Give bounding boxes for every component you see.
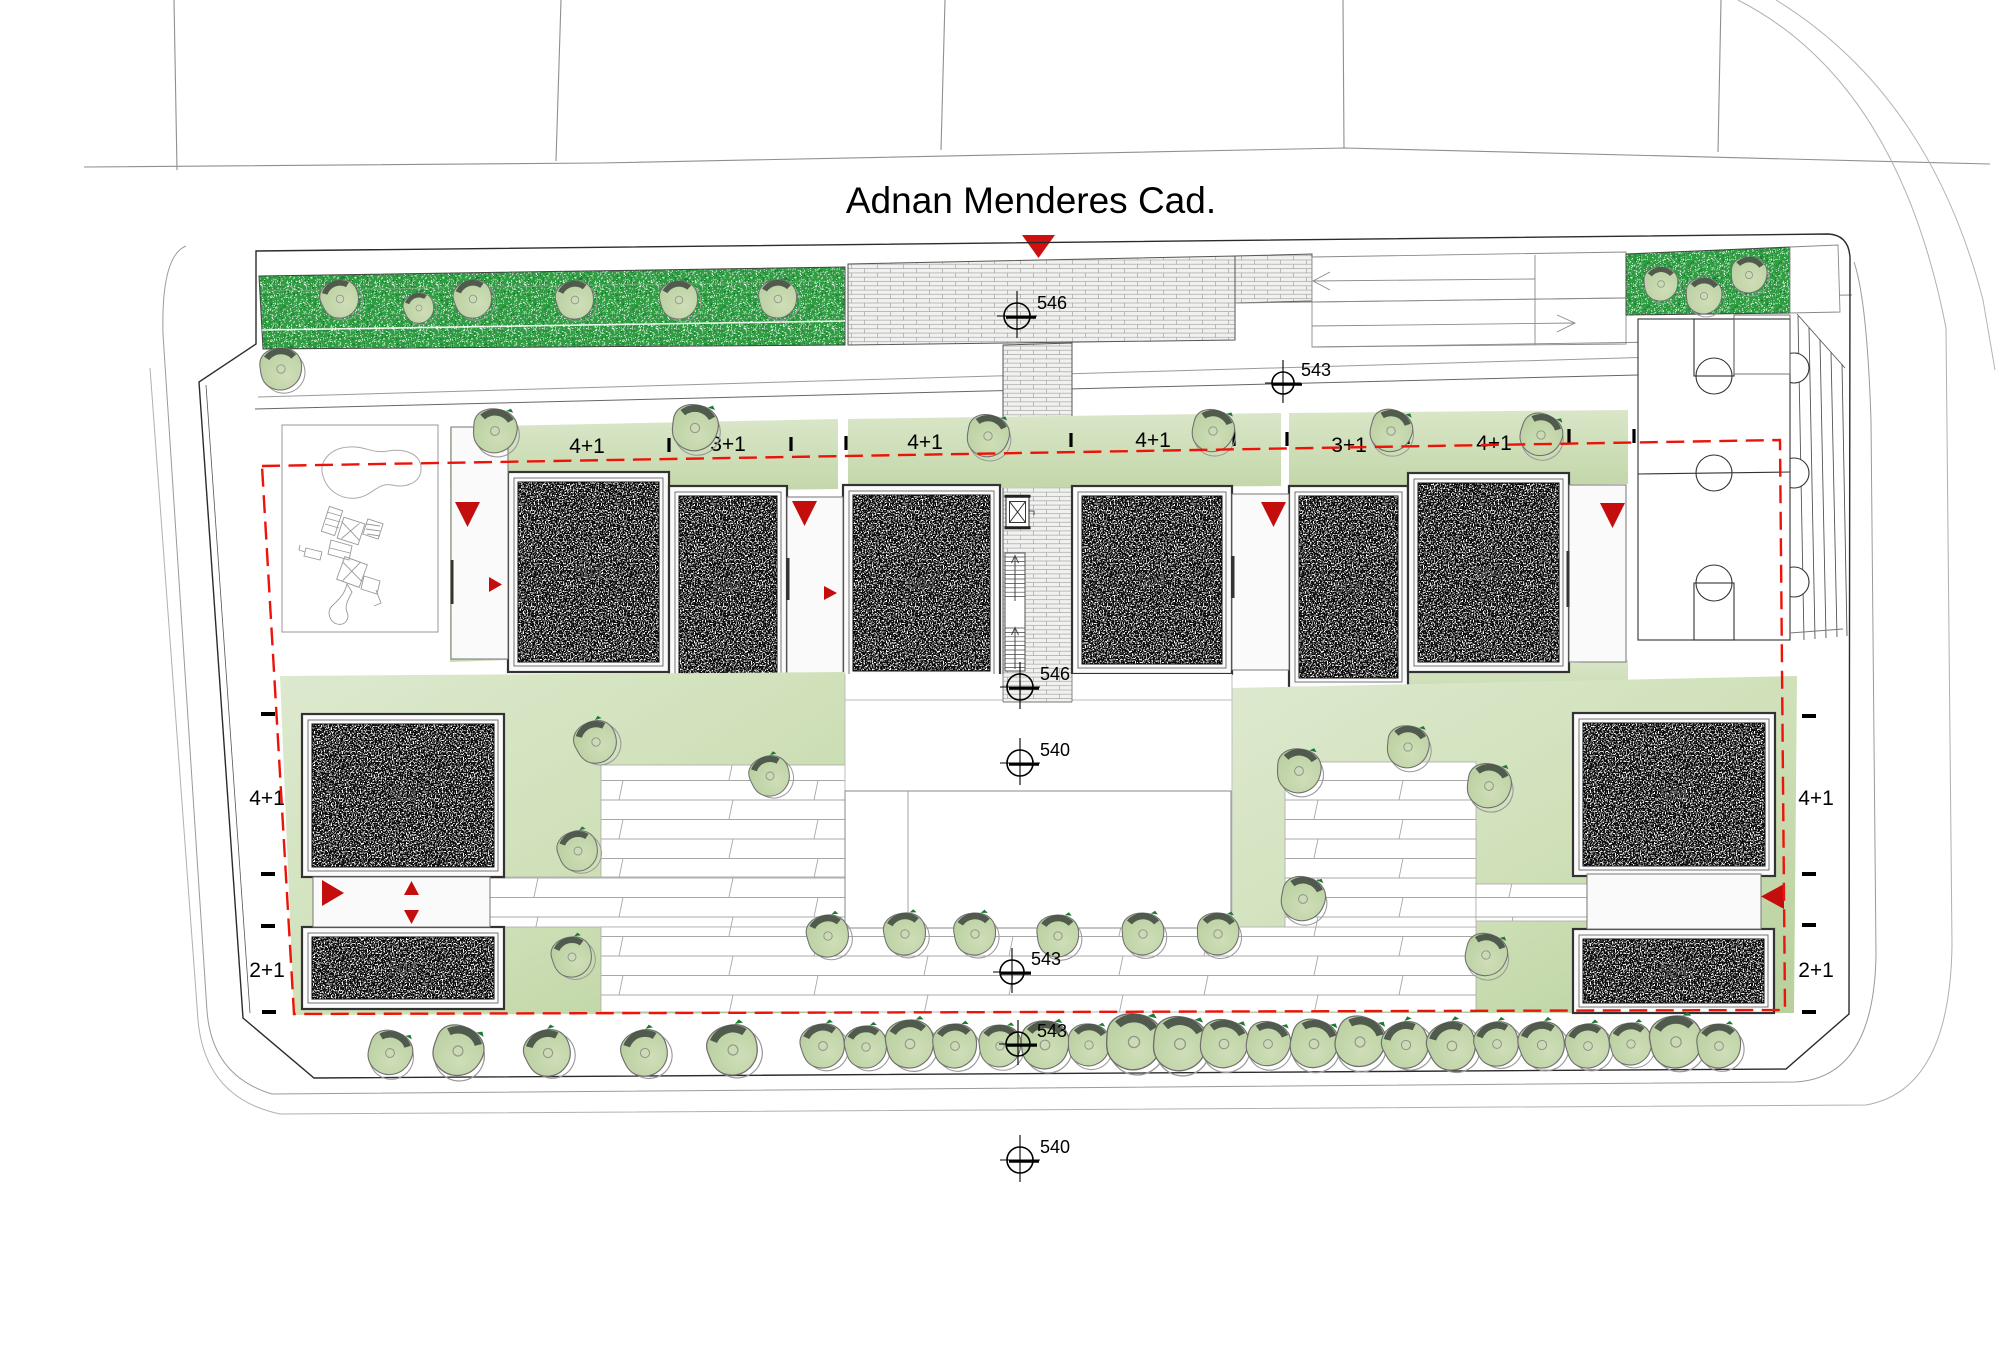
svg-text:2+1: 2+1 — [1798, 959, 1834, 982]
svg-text:546: 546 — [1037, 293, 1067, 313]
svg-text:543: 543 — [1037, 1021, 1067, 1041]
svg-text:504: 504 — [1334, 578, 1362, 597]
svg-text:543: 543 — [1301, 360, 1331, 380]
svg-text:504: 504 — [574, 563, 602, 582]
svg-text:4+1: 4+1 — [249, 787, 285, 810]
svg-text:4+1: 4+1 — [1135, 429, 1171, 452]
svg-text:4+1: 4+1 — [1798, 787, 1834, 810]
svg-text:4+1: 4+1 — [907, 431, 943, 454]
svg-text:2+1: 2+1 — [249, 959, 285, 982]
svg-text:543: 543 — [1031, 949, 1061, 969]
svg-text:504: 504 — [1660, 786, 1688, 805]
svg-text:504: 504 — [1138, 571, 1166, 590]
svg-text:4+1: 4+1 — [1476, 432, 1512, 455]
svg-text:504: 504 — [389, 959, 417, 978]
svg-text:546: 546 — [1040, 664, 1070, 684]
svg-text:504: 504 — [907, 574, 935, 593]
svg-text:504: 504 — [714, 578, 742, 597]
svg-text:Adnan Menderes Cad.: Adnan Menderes Cad. — [846, 180, 1216, 221]
svg-text:504: 504 — [389, 787, 417, 806]
svg-text:540: 540 — [1040, 1137, 1070, 1157]
svg-text:504: 504 — [1474, 564, 1502, 583]
svg-text:540: 540 — [1040, 740, 1070, 760]
svg-text:3+1: 3+1 — [1331, 434, 1367, 457]
svg-text:4+1: 4+1 — [569, 435, 605, 458]
svg-text:504: 504 — [1659, 962, 1687, 981]
